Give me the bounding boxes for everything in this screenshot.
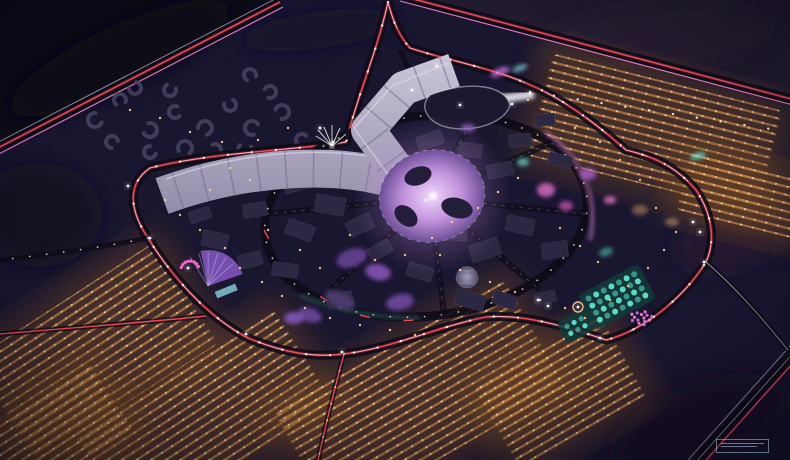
aerial-night-photo	[0, 0, 790, 460]
scene-canvas	[0, 0, 790, 460]
watermark-box	[716, 439, 769, 453]
watermark-line	[721, 443, 764, 444]
vignette	[0, 0, 790, 460]
watermark-line	[721, 446, 757, 447]
